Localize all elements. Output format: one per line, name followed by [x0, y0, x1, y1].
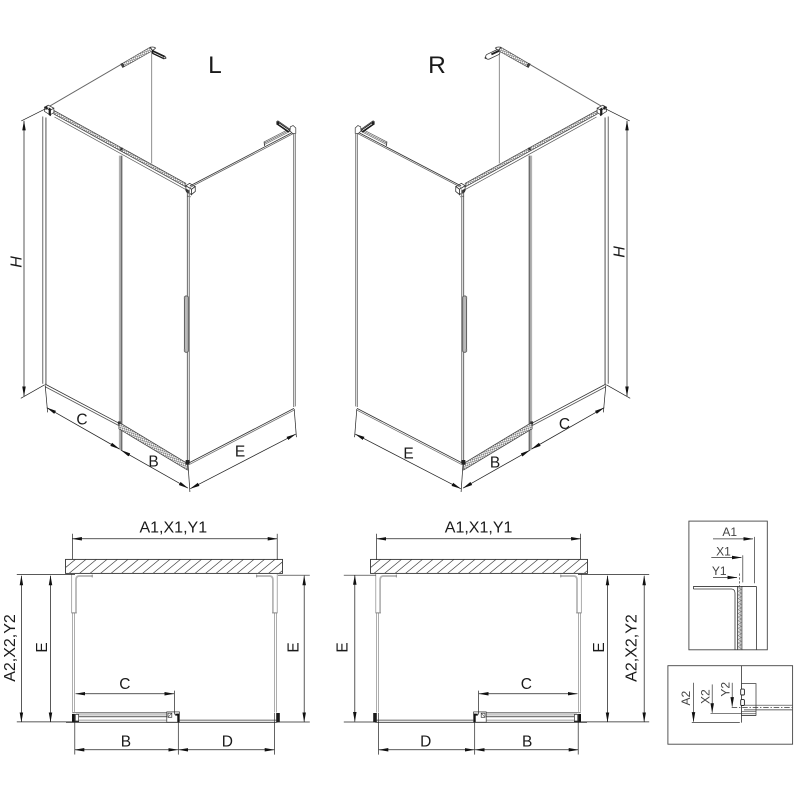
svg-text:D: D: [420, 733, 431, 750]
svg-text:C: C: [119, 676, 130, 693]
svg-text:H: H: [9, 256, 26, 268]
svg-text:H: H: [611, 246, 628, 258]
svg-text:E: E: [334, 642, 351, 652]
svg-text:A1,X1,Y1: A1,X1,Y1: [445, 520, 513, 537]
svg-text:E: E: [235, 444, 245, 461]
svg-text:B: B: [148, 453, 158, 470]
svg-text:A2,X2,Y2: A2,X2,Y2: [2, 614, 19, 682]
svg-text:E: E: [403, 446, 413, 463]
svg-text:B: B: [522, 733, 532, 750]
svg-text:E: E: [286, 642, 303, 652]
svg-text:C: C: [521, 676, 532, 693]
svg-text:C: C: [559, 416, 570, 433]
svg-text:X2: X2: [698, 689, 712, 704]
svg-text:A2: A2: [679, 691, 693, 706]
svg-text:D: D: [222, 733, 233, 750]
svg-text:A2,X2,Y2: A2,X2,Y2: [624, 614, 641, 682]
svg-text:X1: X1: [716, 544, 731, 558]
svg-text:R: R: [428, 52, 446, 79]
svg-text:E: E: [34, 642, 51, 652]
svg-text:B: B: [490, 455, 500, 472]
svg-text:Y2: Y2: [718, 682, 732, 697]
svg-text:E: E: [591, 642, 608, 652]
svg-text:C: C: [76, 412, 87, 429]
svg-text:A1,X1,Y1: A1,X1,Y1: [139, 520, 207, 537]
svg-text:Y1: Y1: [712, 564, 727, 578]
svg-text:L: L: [208, 52, 222, 79]
svg-text:B: B: [121, 733, 131, 750]
svg-text:A1: A1: [722, 525, 737, 539]
